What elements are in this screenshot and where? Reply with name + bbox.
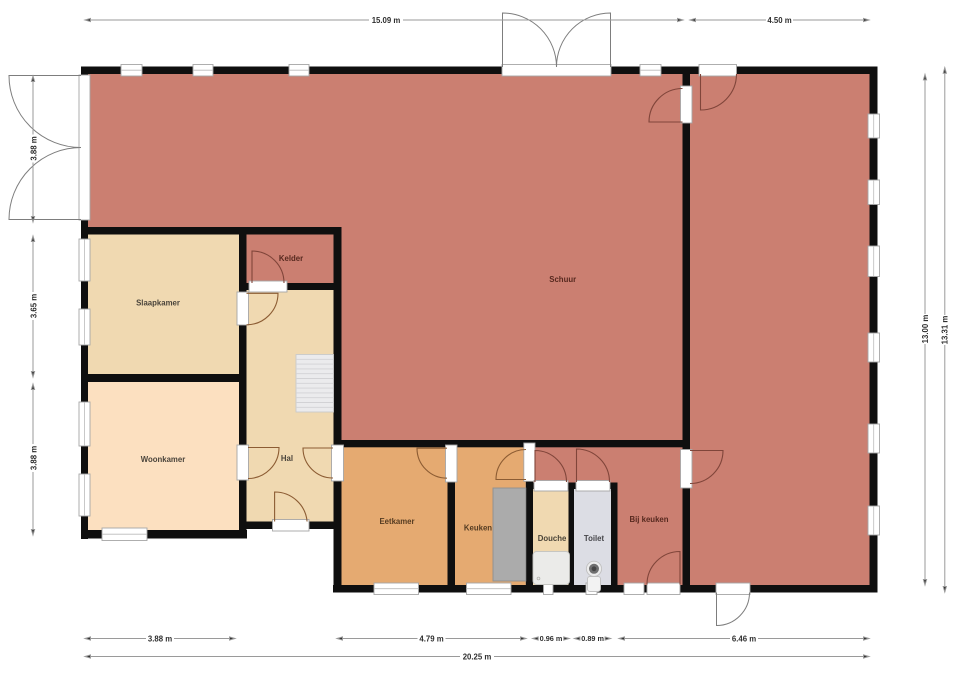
svg-text:15.09 m: 15.09 m (372, 16, 401, 25)
svg-text:Douche: Douche (538, 534, 567, 543)
svg-text:20.25 m: 20.25 m (463, 652, 492, 661)
svg-text:6.46 m: 6.46 m (732, 634, 756, 643)
svg-text:4.50 m: 4.50 m (767, 16, 791, 25)
svg-text:Hal: Hal (281, 454, 293, 463)
svg-text:Schuur: Schuur (549, 275, 576, 284)
svg-text:0.96 m: 0.96 m (540, 634, 563, 643)
svg-text:Keuken: Keuken (464, 523, 492, 532)
svg-text:Bij keuken: Bij keuken (630, 515, 669, 524)
svg-text:Eetkamer: Eetkamer (379, 517, 414, 526)
svg-text:4.79 m: 4.79 m (419, 634, 443, 643)
svg-text:13.00 m: 13.00 m (921, 315, 930, 344)
svg-text:3.65 m: 3.65 m (30, 294, 39, 318)
svg-text:3.88 m: 3.88 m (30, 136, 39, 160)
svg-text:Kelder: Kelder (279, 254, 303, 263)
svg-text:Toilet: Toilet (584, 534, 605, 543)
svg-text:Woonkamer: Woonkamer (141, 455, 185, 464)
svg-text:0.89 m: 0.89 m (581, 634, 604, 643)
svg-text:Slaapkamer: Slaapkamer (136, 298, 180, 307)
svg-text:13.31 m: 13.31 m (941, 316, 950, 345)
svg-text:3.88 m: 3.88 m (30, 446, 39, 470)
svg-text:3.88 m: 3.88 m (148, 634, 172, 643)
